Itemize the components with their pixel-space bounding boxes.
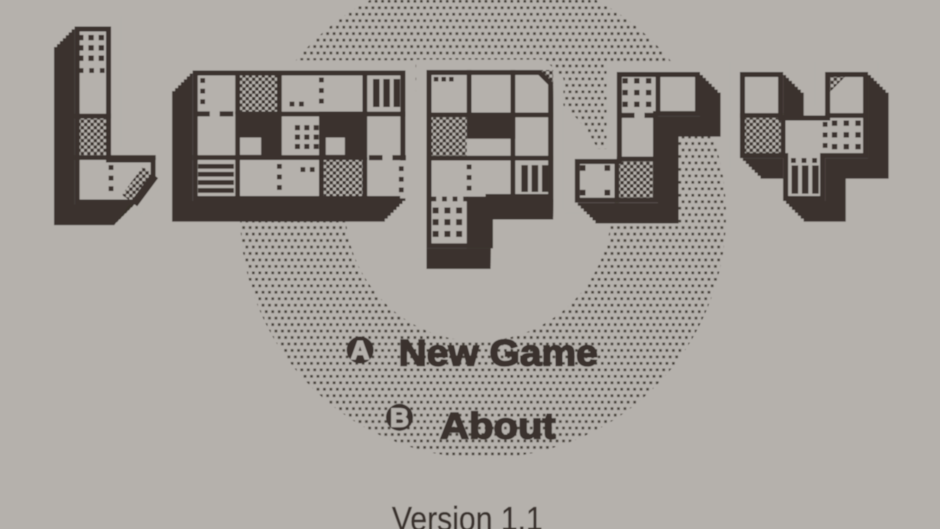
svg-text:About: About: [440, 406, 558, 447]
svg-text:B: B: [390, 403, 409, 432]
svg-text:New Game: New Game: [399, 333, 598, 374]
svg-text:Version 1.1: Version 1.1: [392, 501, 543, 529]
svg-text:A: A: [351, 336, 372, 365]
